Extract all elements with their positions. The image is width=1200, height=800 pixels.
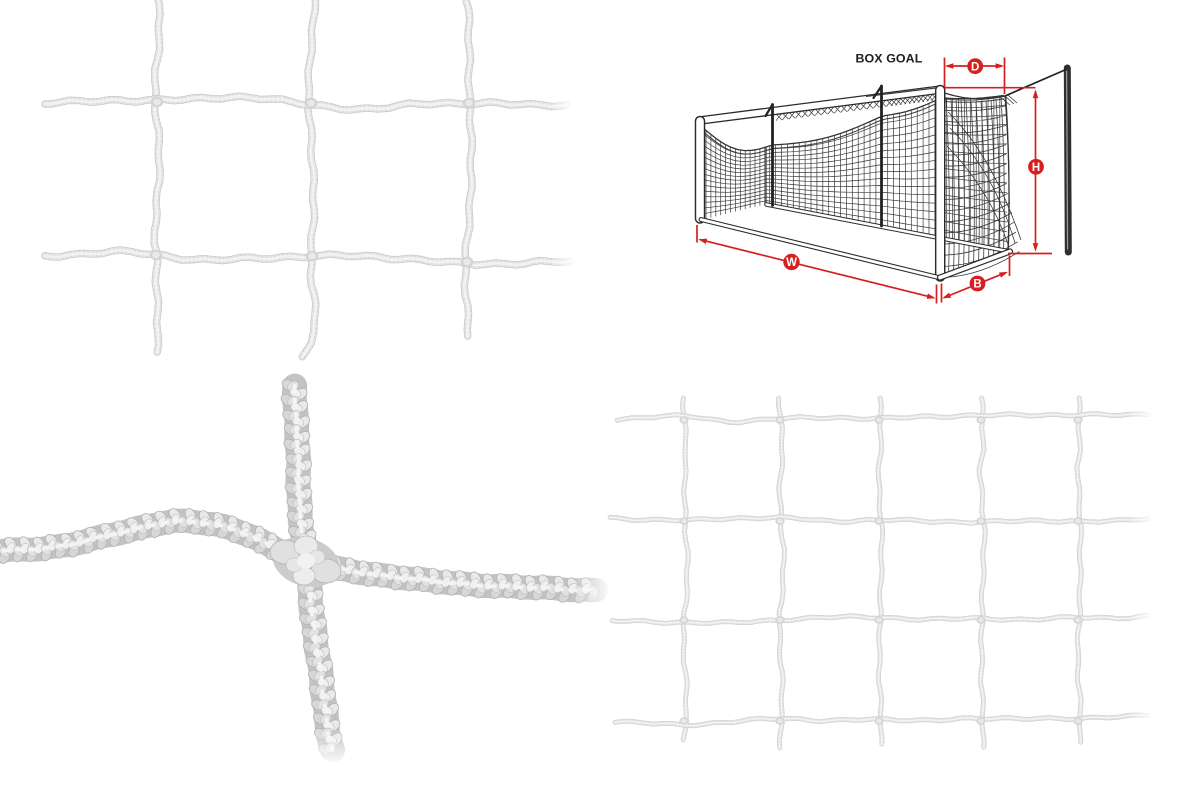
svg-text:W: W xyxy=(786,257,797,269)
svg-text:D: D xyxy=(971,61,979,73)
svg-text:B: B xyxy=(973,279,981,291)
svg-text:BOX GOAL: BOX GOAL xyxy=(856,52,923,66)
svg-text:H: H xyxy=(1032,162,1040,174)
